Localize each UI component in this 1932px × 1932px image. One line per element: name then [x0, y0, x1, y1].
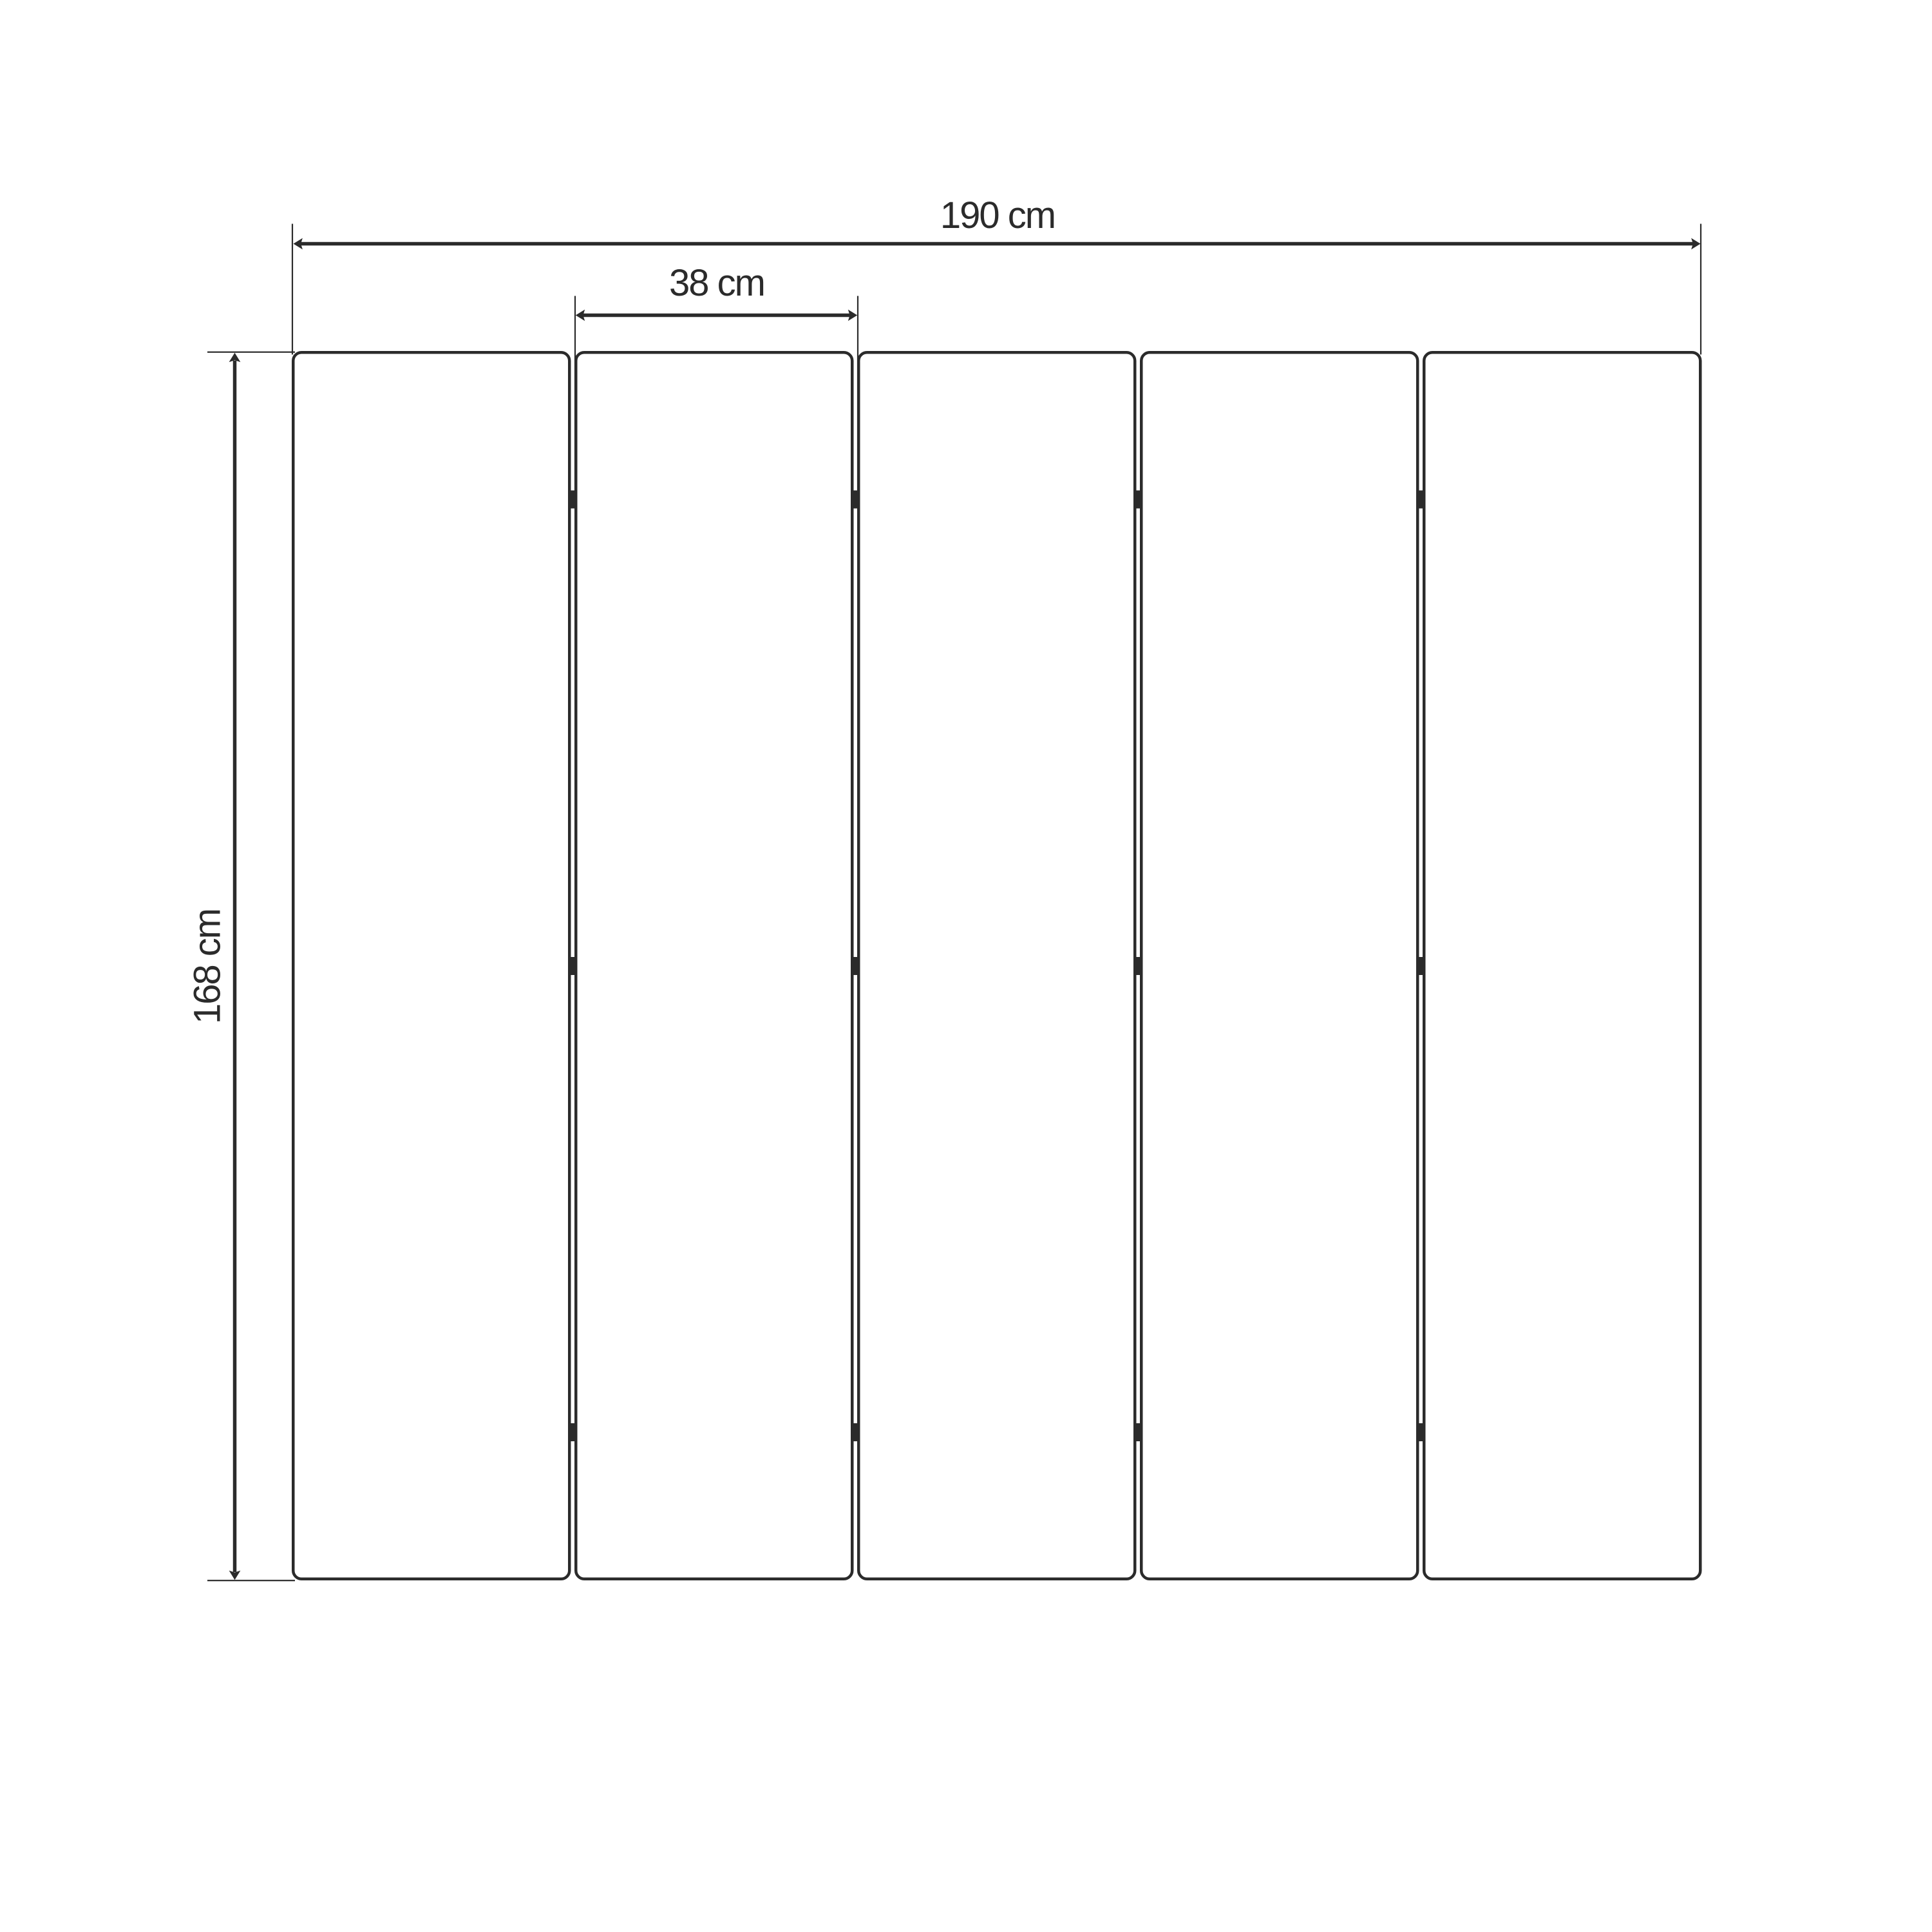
svg-text:38 cm: 38 cm	[669, 262, 764, 304]
svg-text:168 cm: 168 cm	[187, 909, 229, 1024]
svg-text:190 cm: 190 cm	[940, 194, 1055, 236]
